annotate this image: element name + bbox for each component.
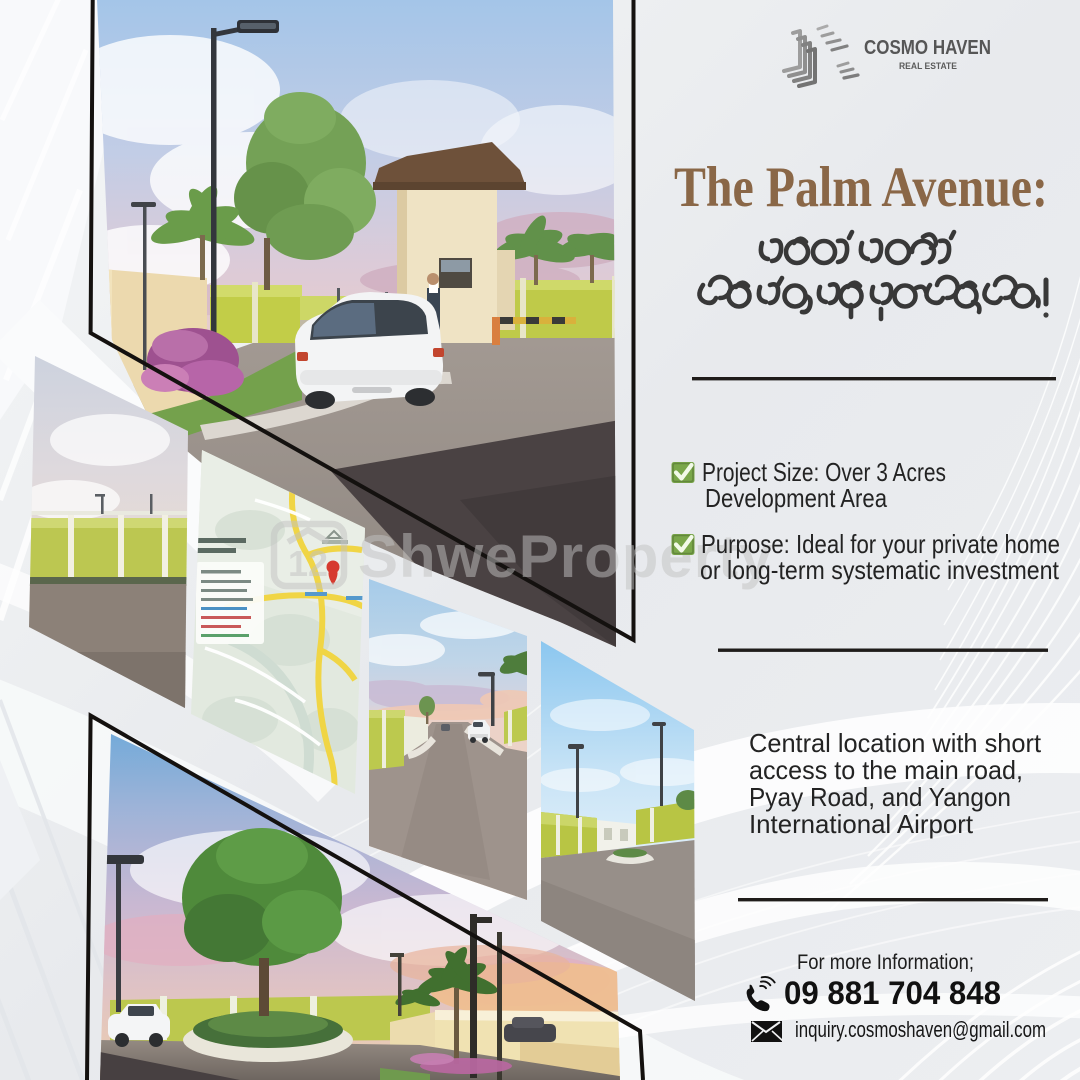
- svg-text:Development Area: Development Area: [705, 483, 887, 513]
- svg-text:or long-term systematic invest: or long-term systematic investment: [700, 555, 1060, 585]
- svg-text:09 881 704 848: 09 881 704 848: [784, 975, 1001, 1011]
- svg-text:The Palm Avenue:: The Palm Avenue:: [674, 156, 1048, 219]
- svg-text:access to the main road,: access to the main road,: [749, 755, 1023, 785]
- svg-text:International Airport: International Airport: [749, 809, 974, 839]
- svg-text:REAL ESTATE: REAL ESTATE: [899, 61, 957, 72]
- svg-text:COSMO HAVEN: COSMO HAVEN: [864, 37, 991, 59]
- svg-text:12: 12: [288, 543, 328, 584]
- svg-text:Central location with short: Central location with short: [749, 728, 1042, 758]
- svg-text:inquiry.cosmoshaven@gmail.com: inquiry.cosmoshaven@gmail.com: [795, 1017, 1046, 1042]
- svg-text:Pyay Road, and Yangon: Pyay Road, and Yangon: [749, 782, 1011, 812]
- svg-text:For more Information;: For more Information;: [797, 950, 974, 974]
